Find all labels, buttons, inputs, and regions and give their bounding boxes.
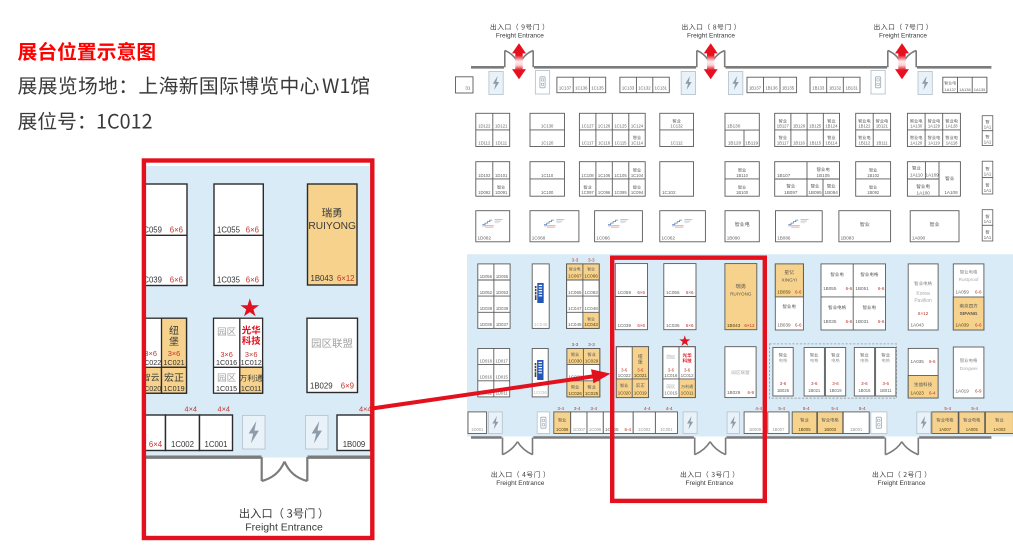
svg-text:3-3: 3-3: [572, 257, 579, 262]
svg-text:1C012: 1C012: [681, 373, 694, 378]
svg-text:1B031: 1B031: [855, 319, 869, 324]
svg-text:1B135: 1B135: [782, 86, 795, 91]
svg-text:Freight Entrance: Freight Entrance: [687, 32, 735, 39]
svg-text:1B094: 1B094: [825, 190, 839, 195]
svg-text:4×4: 4×4: [184, 405, 197, 414]
svg-text:1C068: 1C068: [532, 236, 546, 241]
svg-text:6×4: 6×4: [149, 440, 163, 449]
svg-text:6×12: 6×12: [337, 274, 355, 283]
svg-text:RUIYONG: RUIYONG: [730, 292, 752, 297]
svg-text:1B011: 1B011: [880, 388, 892, 393]
svg-text:1C112: 1C112: [671, 140, 684, 145]
svg-text:1A110: 1A110: [910, 173, 923, 178]
svg-text:1C067: 1C067: [568, 274, 582, 279]
svg-text:5-4: 5-4: [944, 406, 951, 411]
svg-text:1B007: 1B007: [772, 427, 785, 432]
svg-text:1C020: 1C020: [618, 391, 631, 396]
svg-text:1C063: 1C063: [584, 290, 598, 295]
svg-text:6-6: 6-6: [929, 359, 936, 364]
svg-text:1B130: 1B130: [727, 124, 741, 129]
svg-text:Freight Entrance: Freight Entrance: [496, 480, 544, 487]
svg-text:1B021: 1B021: [808, 388, 821, 393]
svg-text:Freight Entrance: Freight Entrance: [496, 32, 544, 39]
svg-text:1B019: 1B019: [829, 388, 842, 393]
svg-text:1B124: 1B124: [825, 124, 838, 129]
svg-text:1D121: 1D121: [495, 124, 508, 129]
svg-text:1B126: 1B126: [793, 124, 806, 129]
svg-text:1D102: 1D102: [478, 173, 491, 178]
svg-text:5-4: 5-4: [859, 406, 866, 411]
svg-text:1C008: 1C008: [556, 427, 569, 432]
svg-text:1A003: 1A003: [993, 427, 1006, 432]
svg-text:1B137: 1B137: [749, 86, 762, 91]
svg-text:1B029: 1B029: [310, 382, 333, 391]
svg-text:6×9: 6×9: [341, 382, 354, 391]
svg-text:1A059: 1A059: [956, 290, 970, 295]
svg-text:1A1: 1A1: [984, 188, 992, 193]
svg-text:1A119: 1A119: [928, 140, 940, 145]
svg-text:1C132: 1C132: [638, 86, 651, 91]
svg-text:1C036: 1C036: [533, 390, 547, 395]
svg-text:1C019: 1C019: [163, 384, 184, 393]
svg-text:1A100: 1A100: [917, 191, 931, 196]
svg-text:1D052: 1D052: [480, 290, 493, 295]
svg-text:1B095: 1B095: [808, 190, 822, 195]
svg-text:1C035: 1C035: [666, 323, 680, 328]
svg-text:1D101: 1D101: [495, 173, 508, 178]
svg-text:1C137: 1C137: [559, 86, 572, 91]
svg-text:3-4: 3-4: [590, 406, 597, 411]
svg-text:1B059: 1B059: [777, 290, 791, 295]
svg-text:1C006: 1C006: [589, 427, 602, 432]
svg-text:1C021: 1C021: [163, 358, 184, 367]
svg-text:1C124: 1C124: [631, 124, 644, 129]
svg-text:1A109: 1A109: [926, 173, 940, 178]
svg-text:1B111: 1B111: [876, 140, 888, 145]
svg-text:1A136: 1A136: [959, 87, 971, 92]
svg-text:6×12: 6×12: [744, 323, 755, 328]
svg-text:1B039: 1B039: [777, 323, 791, 328]
svg-text:1C096: 1C096: [598, 190, 611, 195]
svg-text:3-6: 3-6: [811, 381, 818, 386]
svg-text:6×6: 6×6: [170, 276, 183, 285]
svg-text:1B005: 1B005: [798, 427, 811, 432]
svg-text:1C035: 1C035: [217, 276, 241, 285]
svg-text:1C022: 1C022: [618, 373, 631, 378]
svg-text:1D091: 1D091: [495, 190, 508, 195]
svg-text:1A120: 1A120: [910, 140, 923, 145]
svg-text:1C047: 1C047: [568, 306, 582, 311]
svg-text:1C015: 1C015: [664, 391, 677, 396]
svg-text:1B015: 1B015: [858, 388, 871, 393]
svg-text:1C001: 1C001: [205, 440, 228, 449]
svg-text:1C055: 1C055: [666, 290, 680, 295]
svg-text:1C001: 1C001: [660, 427, 673, 432]
svg-text:1B132: 1B132: [829, 86, 842, 91]
svg-text:3×6: 3×6: [168, 349, 181, 358]
svg-text:1D053: 1D053: [496, 290, 509, 295]
svg-text:1C062: 1C062: [662, 236, 676, 241]
svg-text:6×6: 6×6: [246, 276, 259, 285]
svg-text:1B107: 1B107: [777, 173, 791, 178]
svg-text:1B001: 1B001: [850, 427, 863, 432]
svg-text:3-6: 3-6: [780, 381, 787, 386]
svg-text:3×6: 3×6: [144, 349, 157, 358]
svg-text:XINGYI: XINGYI: [782, 278, 798, 283]
svg-text:1C012: 1C012: [241, 358, 262, 367]
svg-text:1B090: 1B090: [727, 236, 741, 241]
svg-text:1C116: 1C116: [598, 140, 611, 145]
svg-text:1A090: 1A090: [912, 236, 926, 241]
svg-text:1C110: 1C110: [541, 173, 554, 178]
svg-text:6×6: 6×6: [686, 290, 694, 295]
svg-text:4×4: 4×4: [359, 405, 372, 414]
svg-text:1B125: 1B125: [809, 124, 822, 129]
svg-text:6×12: 6×12: [918, 311, 929, 316]
svg-text:3-6: 3-6: [861, 381, 868, 386]
svg-text:1A1: 1A1: [984, 235, 992, 240]
svg-text:1D036: 1D036: [480, 322, 493, 327]
svg-text:1B122: 1B122: [858, 124, 871, 129]
svg-text:3-3: 3-3: [572, 342, 579, 347]
svg-text:Korea: Korea: [916, 291, 930, 297]
svg-text:1B035: 1B035: [823, 319, 837, 324]
svg-text:1C117: 1C117: [582, 140, 595, 145]
svg-text:4-4: 4-4: [666, 406, 673, 411]
svg-text:1C095: 1C095: [614, 190, 627, 195]
svg-text:6-6: 6-6: [878, 286, 885, 291]
svg-text:1A1: 1A1: [984, 125, 992, 130]
svg-text:3-6: 3-6: [637, 368, 644, 373]
svg-text:1B003: 1B003: [824, 427, 837, 432]
svg-text:1D111: 1D111: [495, 140, 507, 145]
svg-text:1A023: 1A023: [911, 391, 925, 396]
svg-text:1A043: 1A043: [911, 323, 925, 328]
svg-text:1B114: 1B114: [825, 140, 837, 145]
svg-text:3-6: 3-6: [668, 368, 675, 373]
svg-text:1D015: 1D015: [496, 375, 509, 380]
svg-text:1A007: 1A007: [939, 427, 952, 432]
svg-text:1C043: 1C043: [584, 322, 598, 327]
svg-text:1B097: 1B097: [784, 190, 798, 195]
svg-text:1C105: 1C105: [614, 173, 627, 178]
svg-text:1C019: 1C019: [634, 391, 647, 396]
svg-text:Freight Entrance: Freight Entrance: [245, 522, 323, 534]
svg-text:1A1: 1A1: [984, 171, 992, 176]
svg-text:1C125: 1C125: [614, 124, 627, 129]
svg-text:1B116: 1B116: [793, 140, 805, 145]
svg-text:1C135: 1C135: [591, 86, 604, 91]
svg-text:6-6: 6-6: [795, 290, 802, 295]
svg-text:1C011: 1C011: [681, 391, 694, 396]
svg-text:RUIYONG: RUIYONG: [308, 221, 356, 232]
svg-text:4-4: 4-4: [644, 406, 651, 411]
svg-text:1D056: 1D056: [480, 274, 493, 279]
svg-text:1D082: 1D082: [478, 236, 492, 241]
svg-text:1A019: 1A019: [956, 389, 970, 394]
svg-text:6-4: 6-4: [624, 427, 631, 432]
svg-text:1C016: 1C016: [216, 358, 237, 367]
svg-text:1C021: 1C021: [634, 373, 647, 378]
svg-text:1C094: 1C094: [631, 190, 644, 195]
svg-text:6-6: 6-6: [846, 286, 853, 291]
svg-text:1B120: 1B120: [728, 140, 742, 145]
svg-text:6×6: 6×6: [170, 226, 183, 235]
svg-text:6-6: 6-6: [846, 319, 853, 324]
svg-text:1C131: 1C131: [655, 86, 668, 91]
svg-text:Freight Entrance: Freight Entrance: [685, 480, 733, 487]
svg-text:1C039: 1C039: [618, 323, 632, 328]
svg-text:1C002: 1C002: [638, 427, 651, 432]
svg-text:Freight Entrance: Freight Entrance: [879, 32, 927, 39]
svg-text:1C026: 1C026: [568, 391, 582, 396]
svg-text:1C097: 1C097: [581, 190, 594, 195]
svg-text:6×6: 6×6: [246, 226, 259, 235]
svg-text:1B009: 1B009: [749, 427, 762, 432]
svg-text:1C106: 1C106: [598, 173, 611, 178]
svg-text:1B110: 1B110: [736, 173, 748, 178]
svg-text:1B119: 1B119: [745, 140, 758, 145]
svg-text:1D018: 1D018: [480, 358, 493, 363]
svg-text:1B121: 1B121: [876, 124, 889, 129]
svg-text:3-3: 3-3: [588, 342, 595, 347]
svg-text:1B105: 1B105: [817, 173, 831, 178]
svg-text:1C045: 1C045: [568, 322, 582, 327]
svg-text:1D038: 1D038: [480, 306, 493, 311]
svg-text:3-6: 3-6: [684, 368, 691, 373]
svg-text:1C046: 1C046: [534, 322, 548, 327]
svg-text:1A118: 1A118: [946, 140, 958, 145]
svg-text:4-4: 4-4: [755, 406, 762, 411]
svg-text:1D017: 1D017: [496, 358, 509, 363]
svg-text:1B115: 1B115: [809, 140, 821, 145]
svg-text:1D122: 1D122: [478, 124, 491, 129]
svg-text:1A128: 1A128: [946, 124, 959, 129]
svg-text:1A035: 1A035: [911, 359, 925, 364]
svg-text:1C065: 1C065: [568, 290, 582, 295]
svg-text:1D001: 1D001: [471, 427, 484, 432]
svg-text:1C114: 1C114: [631, 140, 644, 145]
svg-text:1C136: 1C136: [575, 86, 588, 91]
svg-text:1A005: 1A005: [966, 427, 979, 432]
svg-text:1B092: 1B092: [867, 190, 880, 195]
svg-text:1A137: 1A137: [944, 87, 956, 92]
svg-text:1D092: 1D092: [478, 190, 491, 195]
svg-text:1B043: 1B043: [311, 274, 334, 283]
svg-text:1C007: 1C007: [573, 427, 586, 432]
svg-text:6-6: 6-6: [975, 323, 982, 328]
svg-text:1C025: 1C025: [585, 391, 599, 396]
svg-text:1B102: 1B102: [867, 173, 880, 178]
svg-text:1C127: 1C127: [581, 124, 594, 129]
svg-text:6×6: 6×6: [637, 323, 645, 328]
svg-text:3-6: 3-6: [832, 381, 839, 386]
svg-text:3-4: 3-4: [574, 406, 581, 411]
svg-text:1C015: 1C015: [216, 384, 237, 393]
svg-text:1B086: 1B086: [777, 236, 791, 241]
svg-text:1B100: 1B100: [736, 190, 749, 195]
svg-text:6×6: 6×6: [686, 323, 694, 328]
svg-text:1C055: 1C055: [217, 226, 241, 235]
svg-text:1B131: 1B131: [846, 86, 859, 91]
svg-text:1A129: 1A129: [928, 124, 941, 129]
svg-text:1B043: 1B043: [727, 323, 741, 328]
svg-text:1A039: 1A039: [956, 323, 970, 328]
svg-text:1C030: 1C030: [568, 359, 582, 364]
svg-text:6-6: 6-6: [878, 319, 885, 324]
svg-text:1B083: 1B083: [841, 236, 855, 241]
svg-text:1B136: 1B136: [765, 86, 778, 91]
svg-text:1B133: 1B133: [812, 86, 825, 91]
svg-text:1B127: 1B127: [777, 124, 790, 129]
svg-text:1B025: 1B025: [777, 388, 790, 393]
svg-text:1B009: 1B009: [343, 440, 366, 449]
svg-text:1C002: 1C002: [171, 440, 194, 449]
svg-text:Rustproof: Rustproof: [959, 277, 980, 282]
svg-text:6×6: 6×6: [637, 290, 645, 295]
svg-text:1A130: 1A130: [910, 124, 923, 129]
svg-text:3-3: 3-3: [588, 257, 595, 262]
svg-text:1D016: 1D016: [480, 375, 493, 380]
svg-text:1A108: 1A108: [944, 190, 958, 195]
svg-text:31: 31: [465, 86, 471, 91]
svg-text:6-9: 6-9: [975, 389, 982, 394]
svg-text:1B055: 1B055: [823, 286, 837, 291]
svg-text:1C048: 1C048: [584, 306, 598, 311]
svg-text:1B029: 1B029: [727, 390, 741, 395]
svg-text:1B112: 1B112: [858, 140, 870, 145]
svg-text:4×4: 4×4: [217, 405, 230, 414]
svg-text:1C133: 1C133: [622, 86, 635, 91]
svg-text:1B117: 1B117: [777, 140, 789, 145]
svg-text:1C011: 1C011: [241, 384, 262, 393]
svg-text:1A1: 1A1: [984, 139, 992, 144]
svg-text:6-9: 6-9: [747, 390, 754, 395]
svg-text:1C102: 1C102: [662, 190, 676, 195]
svg-text:1C029: 1C029: [585, 359, 599, 364]
svg-text:5-4: 5-4: [778, 406, 785, 411]
svg-text:1A1: 1A1: [984, 219, 992, 224]
svg-text:6-6: 6-6: [975, 290, 982, 295]
svg-text:1C100: 1C100: [541, 190, 554, 195]
svg-text:1A135: 1A135: [974, 87, 986, 92]
svg-text:3-6: 3-6: [621, 368, 628, 373]
svg-text:1C016: 1C016: [664, 373, 677, 378]
svg-text:1C066: 1C066: [596, 236, 610, 241]
svg-text:6-4: 6-4: [929, 391, 936, 396]
svg-text:1C130: 1C130: [541, 124, 554, 129]
svg-text:3-4: 3-4: [557, 406, 564, 411]
svg-text:1D055: 1D055: [496, 274, 509, 279]
svg-text:Dongwei: Dongwei: [960, 366, 978, 371]
svg-text:1C059: 1C059: [618, 290, 632, 295]
svg-text:1B051: 1B051: [855, 286, 869, 291]
svg-text:1C104: 1C104: [631, 173, 644, 178]
svg-text:SIFANG: SIFANG: [960, 311, 978, 317]
svg-text:1D112: 1D112: [478, 140, 491, 145]
svg-text:5-4: 5-4: [803, 406, 810, 411]
svg-text:Pavilion: Pavilion: [914, 298, 932, 304]
svg-text:6-6: 6-6: [795, 323, 802, 328]
svg-text:1C115: 1C115: [614, 140, 627, 145]
svg-text:1C132: 1C132: [670, 124, 683, 129]
svg-text:1C126: 1C126: [598, 124, 611, 129]
svg-text:1D039: 1D039: [496, 306, 509, 311]
svg-text:1C066: 1C066: [584, 274, 598, 279]
svg-text:Freight Entrance: Freight Entrance: [877, 480, 925, 487]
svg-text:1C120: 1C120: [541, 140, 554, 145]
svg-text:3-6: 3-6: [882, 381, 889, 386]
svg-text:5-4: 5-4: [971, 406, 978, 411]
svg-text:1C108: 1C108: [581, 173, 594, 178]
svg-text:5-4: 5-4: [831, 406, 838, 411]
svg-text:1D037: 1D037: [496, 322, 509, 327]
